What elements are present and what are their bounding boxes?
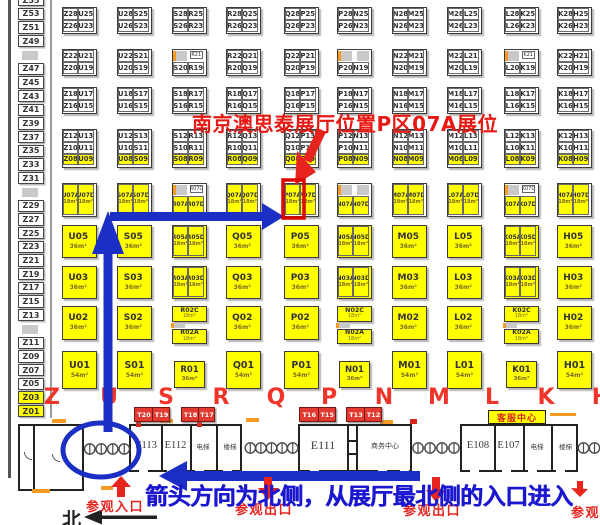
booth-M20: M20 (448, 62, 463, 74)
booth-Z28: Z28 (63, 8, 78, 20)
booth-block: L18K17L16K15 (504, 87, 539, 114)
booth-K19: K19 (520, 62, 536, 74)
booth-T20: T20 (135, 408, 153, 421)
booth-M11: M11 (408, 142, 424, 154)
booth-area: 18m² (515, 337, 528, 342)
booth-P07A: P07A18m² (285, 184, 300, 215)
booth-Z39: Z39 (18, 117, 44, 129)
booth-P17: P17 (300, 88, 316, 100)
booth-Z08: Z08 (63, 154, 78, 166)
booth-L16: L16 (505, 100, 520, 112)
booth-T19: T19 (152, 408, 170, 421)
booth-U11: U11 (78, 142, 94, 154)
booth-block: P20N19 (337, 49, 372, 76)
booth-block: Q22P21Q20P19 (284, 49, 319, 76)
gray-block (508, 185, 520, 195)
booth-area: 18m² (354, 242, 368, 248)
booth-P18: P18 (338, 88, 353, 100)
booth-T15: T15 (318, 408, 337, 421)
booth-Z49: Z49 (18, 35, 44, 47)
booth-Z53: Z53 (18, 8, 44, 20)
booth-N28: N28 (393, 8, 408, 20)
booth-L05: L0536m² (448, 226, 479, 256)
booth-area: 18m² (409, 200, 423, 206)
booth-label: Q02 (232, 313, 252, 324)
booth-N19: N19 (353, 62, 369, 74)
booth-Q17: Q17 (242, 88, 258, 100)
booth-K15: K15 (520, 100, 536, 112)
booth-area: 36m² (125, 243, 142, 251)
booth-U17: U17 (78, 88, 94, 100)
booth-P25: P25 (300, 8, 316, 20)
booth-Q21: Q21 (242, 50, 258, 62)
booth-M21: M21 (408, 50, 424, 62)
booth-N05D: N05D18m² (353, 226, 369, 256)
booth-Q09: Q09 (242, 154, 258, 166)
booth-N17: N17 (353, 88, 369, 100)
booth-M03: M0336m² (393, 267, 424, 297)
booth-label: H03 (563, 273, 583, 284)
booth-area: 36m² (70, 284, 87, 292)
booth-K12: K12 (558, 130, 573, 142)
booth-tag-K21: K21 (522, 51, 535, 59)
service-center-label: 客服中心 (488, 410, 546, 424)
booth-area: 18m² (521, 283, 535, 289)
booth-R02C: R02C18m² (172, 306, 207, 322)
booth-K20: K20 (558, 62, 573, 74)
booth-K08: K08 (558, 154, 573, 166)
column-letter-Q: Q (263, 386, 289, 408)
booth-U18: U18 (118, 88, 133, 100)
booth-L03: L0336m² (448, 267, 479, 297)
booth-tag-R21: R21 (190, 51, 203, 59)
booth-block: H0336m² (557, 266, 592, 299)
booth-N02A: N02A18m² (337, 329, 372, 345)
booth-M22: M22 (448, 50, 463, 62)
booth-block: M07A18m²M07D18m² (392, 183, 427, 217)
booth-block: Q0154m² (226, 351, 261, 389)
booth-M25: M25 (408, 8, 424, 20)
booth-block: S0536m² (117, 225, 152, 258)
booth-area: 18m² (285, 200, 299, 206)
booth-area: 36m² (455, 243, 472, 251)
booth-S02: S0236m² (118, 307, 149, 338)
booth-area: 18m² (354, 283, 368, 289)
t-booth-block: T18T17 (181, 407, 215, 422)
booth-block: Q0236m² (226, 306, 261, 340)
booth-area: 18m² (348, 314, 361, 319)
booth-K22: K22 (558, 50, 573, 62)
booth-S11: S11 (133, 142, 149, 154)
booth-M28: M28 (448, 8, 463, 20)
booth-N18: N18 (393, 88, 408, 100)
booth-U28: U28 (118, 8, 133, 20)
booth-L08: L08 (505, 154, 520, 166)
booth-label: U01 (69, 360, 90, 372)
booth-R05A: R05A18m² (173, 226, 188, 256)
booth-R07D: R07D (188, 196, 204, 216)
booth-Z29: Z29 (18, 200, 44, 212)
booth-area: 36m² (70, 324, 87, 332)
booth-K02C: K02C18m² (504, 306, 539, 322)
booth-H05: H0536m² (558, 226, 589, 256)
booth-H07A: H07A18m² (558, 184, 573, 215)
booth-Z07: Z07 (18, 364, 44, 376)
booth-N07A: N07A (338, 196, 353, 216)
gray-block (22, 51, 38, 60)
booth-N25: N25 (353, 8, 369, 20)
booth-R18: R18 (227, 88, 242, 100)
booth-N08: N08 (393, 154, 408, 166)
column-letter-U: U (96, 386, 122, 408)
booth-Q20: Q20 (285, 62, 300, 74)
booth-K09: K09 (520, 154, 536, 166)
booth-U22: U22 (118, 50, 133, 62)
direction-note: 箭头方向为北侧，从展厅最北侧的入口进入 (145, 477, 573, 511)
booth-label: P05 (291, 232, 310, 243)
booth-Z20: Z20 (63, 62, 78, 74)
booth-U09: U09 (78, 154, 94, 166)
booth-R20: R20 (227, 62, 242, 74)
booth-S13: S13 (133, 130, 149, 142)
booth-K05D: K05D18m² (520, 226, 536, 256)
booth-area: 54m² (566, 372, 583, 380)
booth-M07A: M07A18m² (393, 184, 408, 215)
booth-S20: S20 (173, 62, 188, 74)
booth-H13: H13 (573, 130, 589, 142)
booth-M18: M18 (448, 88, 463, 100)
booth-block: N22M21N20M19 (392, 49, 427, 76)
booth-block: Z28U25Z26U23 (62, 7, 97, 34)
booth-R22: R22 (227, 50, 242, 62)
booth-block: K28H25K26H23 (557, 7, 592, 34)
booth-label: L05 (454, 232, 472, 243)
booth-label: L01 (455, 360, 474, 372)
column-letter-H: H (588, 386, 600, 408)
booth-K02A: K02A18m² (504, 329, 539, 345)
booth-N07D: N07D (353, 196, 369, 216)
booth-block: K05A18m²K05D18m² (504, 225, 539, 258)
booth-label: S05 (124, 232, 143, 243)
booth-label: H01 (564, 360, 585, 372)
booth-S28: S28 (173, 8, 188, 20)
booth-H17: H17 (573, 88, 589, 100)
booth-P26: P26 (338, 20, 353, 32)
booth-R23: R23 (188, 20, 204, 32)
booth-N10: N10 (393, 142, 408, 154)
booth-H15: H15 (573, 100, 589, 112)
booth-H11: H11 (573, 142, 589, 154)
booth-P08: P08 (338, 154, 353, 166)
booth-area: 18m² (558, 200, 572, 206)
booth-area: 18m² (521, 242, 535, 248)
t-booth-block: T20T19 (134, 407, 170, 422)
booth-block: M22L21M20L19 (447, 49, 482, 76)
booth-L23: L23 (463, 20, 479, 32)
booth-area: 18m² (227, 200, 241, 206)
column-letter-S: S (153, 386, 179, 408)
booth-S19: S19 (133, 62, 149, 74)
booth-area: 36m² (565, 284, 582, 292)
booth-R09: R09 (188, 154, 204, 166)
booth-N05A: N05A18m² (338, 226, 353, 256)
booth-block: N05A18m²N05D18m² (337, 225, 372, 258)
booth-U10: U10 (118, 142, 133, 154)
booth-area: 18m² (189, 283, 203, 289)
booth-S10: S10 (173, 142, 188, 154)
booth-label: P03 (291, 273, 310, 284)
booth-area: 18m² (338, 283, 352, 289)
booth-tag-K07C: K07C (522, 185, 535, 194)
booth-block: L20K19K21 (504, 49, 539, 76)
booth-U07D: U07D18m² (78, 184, 94, 215)
booth-L11: L11 (463, 142, 479, 154)
booth-M17: M17 (408, 88, 424, 100)
booth-H25: H25 (573, 8, 589, 20)
booth-block: L0236m² (447, 306, 482, 340)
booth-Q07D: Q07D18m² (242, 184, 258, 215)
booth-K13: K13 (520, 130, 536, 142)
booth-area: 36m² (292, 284, 309, 292)
booth-block: Z12U13Z10U11Z08U09 (62, 129, 97, 168)
booth-U08: U08 (118, 154, 133, 166)
booth-block: U0336m² (62, 266, 97, 299)
booth-N02C: N02C18m² (337, 306, 372, 322)
booth-area: 18m² (338, 242, 352, 248)
booth-K25: K25 (520, 8, 536, 20)
booth-S23: S23 (133, 20, 149, 32)
booth-location-callout: 南京澳思泰展厅位置P区07A展位 (192, 108, 498, 137)
booth-area: 36m² (70, 243, 87, 251)
booth-N11: N11 (353, 142, 369, 154)
booth-S18: S18 (173, 88, 188, 100)
booth-L07A: L07A18m² (448, 184, 463, 215)
booth-Z25: Z25 (18, 227, 44, 239)
booth-Q02: Q0236m² (227, 307, 258, 338)
booth-H02: H0236m² (558, 307, 589, 338)
booth-label: L03 (454, 273, 472, 284)
booth-block: P0154m² (284, 351, 319, 389)
booth-P07D: P07D18m² (300, 184, 316, 215)
column-letter-Z: Z (39, 386, 65, 408)
booth-K28: K28 (558, 8, 573, 20)
booth-area: 36m² (565, 324, 582, 332)
booth-Z35: Z35 (18, 145, 44, 157)
booth-area: 36m² (125, 324, 142, 332)
booth-H09: H09 (573, 154, 589, 166)
booth-block: P0336m² (284, 266, 319, 299)
booth-M09: M09 (408, 154, 424, 166)
booth-U03: U0336m² (63, 267, 94, 297)
booth-block: L0536m² (447, 225, 482, 258)
booth-Q18: Q18 (285, 88, 300, 100)
booth-Z21: Z21 (18, 254, 44, 266)
booth-block: S0336m² (117, 266, 152, 299)
booth-M02: M0236m² (393, 307, 424, 338)
booth-area: 36m² (182, 376, 198, 383)
column-letter-M: M (426, 386, 452, 408)
booth-P20: P20 (338, 62, 353, 74)
booth-R08: R08 (227, 154, 242, 166)
booth-K16: K16 (558, 100, 573, 112)
booth-K10: K10 (558, 142, 573, 154)
booth-K07A: K07A (505, 196, 520, 216)
gray-block (174, 323, 185, 328)
booth-Z51: Z51 (18, 21, 44, 33)
booth-block: P0536m² (284, 225, 319, 258)
gray-block (341, 51, 353, 62)
booth-block: N03A18m²N03D18m² (337, 266, 372, 299)
booth-U13: U13 (78, 130, 94, 142)
gray-block (508, 51, 520, 62)
booth-area: 36m² (400, 324, 417, 332)
booth-block: H0236m² (557, 306, 592, 340)
booth-label: U02 (68, 313, 88, 324)
booth-block: L0154m² (447, 351, 482, 389)
booth-area: 36m² (514, 376, 530, 383)
booth-U15: U15 (78, 100, 94, 112)
booth-Z17: Z17 (18, 282, 44, 294)
booth-S07A: S07A18m² (118, 184, 133, 215)
booth-Z16: Z16 (63, 100, 78, 112)
booth-area: 18m² (348, 337, 361, 342)
booth-T12: T12 (364, 408, 382, 421)
booth-S25: S25 (133, 8, 149, 20)
booth-block: U0236m² (62, 306, 97, 340)
booth-area: 54m² (401, 372, 418, 380)
booth-N20: N20 (393, 62, 408, 74)
booth-N09: N09 (353, 154, 369, 166)
booth-Z23: Z23 (18, 241, 44, 253)
column-letter-L: L (479, 386, 505, 408)
booth-area: 18m² (515, 314, 528, 319)
booth-Q23: Q23 (242, 20, 258, 32)
booth-area: 54m² (235, 372, 252, 380)
booth-L19: L19 (463, 62, 479, 74)
booth-L07D: L07D18m² (463, 184, 479, 215)
booth-area: 18m² (243, 200, 257, 206)
booth-block: H0536m² (557, 225, 592, 258)
booth-area: 18m² (393, 200, 407, 206)
booth-R05D: R05D18m² (188, 226, 204, 256)
booth-T16: T16 (300, 408, 319, 421)
booth-Z27: Z27 (18, 213, 44, 225)
column-letter-N: N (371, 386, 397, 408)
booth-Q08: Q08 (285, 154, 300, 166)
booth-block: R28Q25R26Q23 (226, 7, 261, 34)
booth-label: U03 (68, 273, 88, 284)
booth-Q26: Q26 (285, 20, 300, 32)
booth-label: H05 (563, 232, 583, 243)
booth-P10: P10 (338, 142, 353, 154)
gray-block (176, 51, 188, 62)
booth-block: Q07A18m²Q07D18m² (226, 183, 261, 217)
booth-Z47: Z47 (18, 63, 44, 75)
booth-T17: T17 (198, 408, 215, 421)
booth-K23: K23 (520, 20, 536, 32)
booth-R19: R19 (188, 62, 204, 74)
booth-block: U28S25U26S23 (117, 7, 152, 34)
booth-L09: L09 (463, 154, 479, 166)
booth-tag-R07C: R07C (190, 185, 203, 194)
booth-area: 36m² (455, 324, 472, 332)
gray-block (506, 323, 517, 328)
booth-M05: M0536m² (393, 226, 424, 256)
gray-block (357, 51, 369, 62)
gray-block (339, 323, 350, 328)
booth-T18: T18 (182, 408, 199, 421)
booth-label: H02 (563, 313, 583, 324)
visitor-exit-label: 参观出口 (571, 502, 600, 521)
booth-label: U05 (68, 232, 88, 243)
booth-block: P0236m² (284, 306, 319, 340)
booth-area: 18m² (63, 200, 77, 206)
booth-block: U0154m² (62, 351, 97, 389)
booth-Q22: Q22 (285, 50, 300, 62)
t-booth-block: T16T15 (299, 407, 336, 422)
booth-block: K03A18m²K03D18m² (504, 266, 539, 299)
booth-U20: U20 (118, 62, 133, 74)
booth-N03D: N03D18m² (353, 267, 369, 297)
booth-area: 54m² (456, 372, 473, 380)
booth-Z18: Z18 (63, 88, 78, 100)
booth-block: H0154m² (557, 351, 592, 389)
booth-P23: P23 (300, 20, 316, 32)
booth-Z09: Z09 (18, 350, 44, 362)
booth-area: 36m² (400, 284, 417, 292)
gray-block (176, 185, 188, 195)
booth-label: M01 (398, 360, 421, 372)
booth-Z10: Z10 (63, 142, 78, 154)
booth-S16: S16 (173, 100, 188, 112)
booth-L26: L26 (505, 20, 520, 32)
booth-area: 18m² (173, 283, 187, 289)
booth-R11: R11 (188, 142, 204, 154)
booth-area: 36m² (347, 376, 363, 383)
booth-label: S03 (124, 273, 143, 284)
booth-S08: S08 (173, 154, 188, 166)
booth-area: 18m² (183, 314, 196, 319)
gray-block (357, 185, 369, 195)
visitor-entrance-label: 参观入口 (86, 496, 144, 515)
booth-area: 18m² (301, 200, 315, 206)
booth-K18: K18 (558, 88, 573, 100)
booth-label: M05 (398, 232, 419, 243)
booth-area: 36m² (234, 243, 251, 251)
booth-N03A: N03A18m² (338, 267, 353, 297)
booth-area: 36m² (234, 284, 251, 292)
booth-L17: L17 (463, 88, 479, 100)
booth-Q05: Q0536m² (227, 226, 258, 256)
booth-block: S0236m² (117, 306, 152, 340)
booth-Q25: Q25 (242, 8, 258, 20)
booth-Z37: Z37 (18, 131, 44, 143)
booth-area: 36m² (292, 243, 309, 251)
column-letter-K: K (533, 386, 559, 408)
booth-L18: L18 (505, 88, 520, 100)
booth-block: Q0336m² (226, 266, 261, 299)
booth-P28: P28 (338, 8, 353, 20)
booth-S21: S21 (133, 50, 149, 62)
booth-T13: T13 (347, 408, 365, 421)
booth-grid: Z55Z53Z51Z49Z47Z45Z43Z41Z39Z37Z35Z33Z31Z… (0, 0, 600, 525)
booth-block: M0336m² (392, 266, 427, 299)
north-label: 北 (62, 505, 81, 525)
booth-H07D: H07D18m² (573, 184, 589, 215)
booth-block: K18H17K16H15 (557, 87, 592, 114)
booth-L21: L21 (463, 50, 479, 62)
booth-block: K12H13K10H11K08H09 (557, 129, 592, 168)
